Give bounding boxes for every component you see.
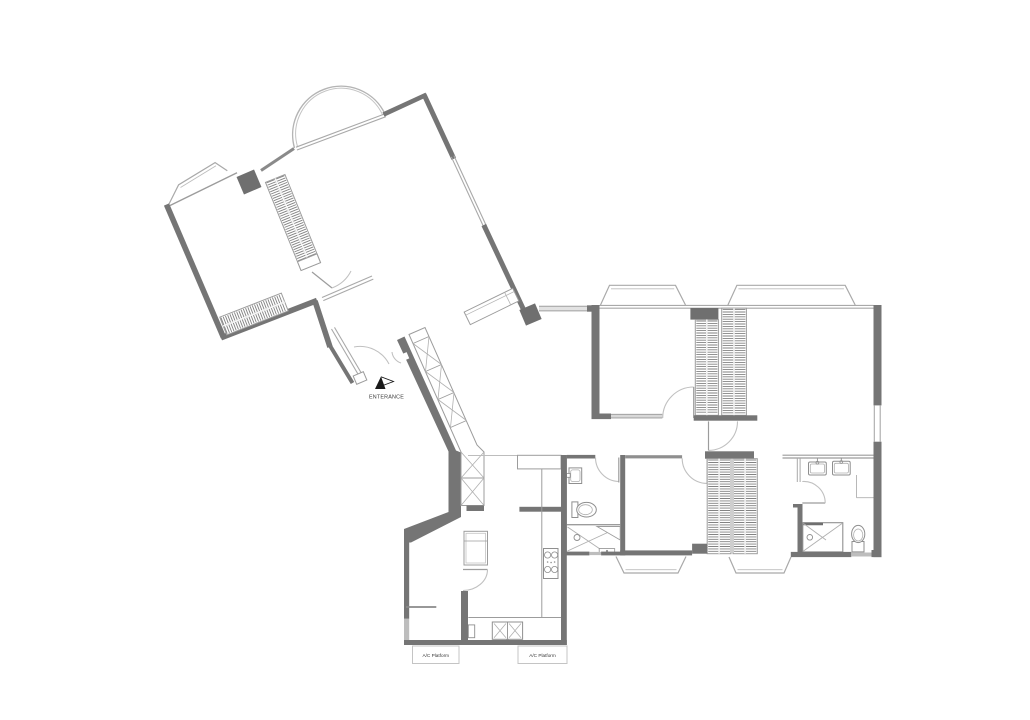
svg-text:A/C Platform: A/C Platform — [423, 653, 450, 658]
svg-text:A/C Platform: A/C Platform — [529, 653, 556, 658]
svg-text:ENTERANCE: ENTERANCE — [369, 395, 404, 401]
